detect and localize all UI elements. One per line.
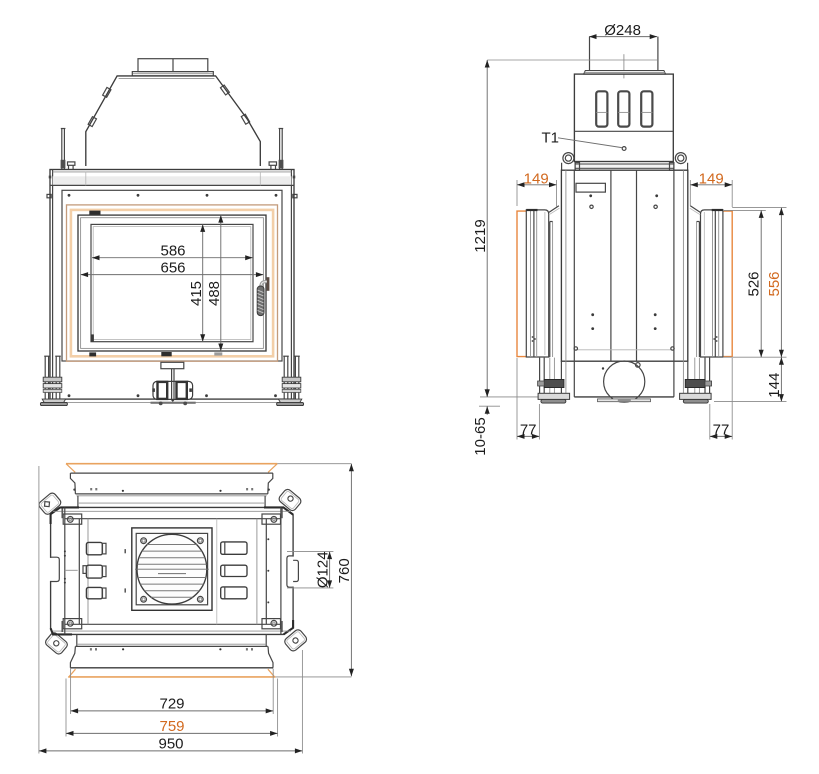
svg-text:760: 760 [336, 558, 353, 583]
svg-text:488: 488 [206, 281, 223, 306]
svg-text:149: 149 [699, 170, 724, 187]
svg-text:656: 656 [160, 259, 185, 276]
svg-text:1219: 1219 [472, 219, 489, 252]
svg-text:759: 759 [159, 718, 184, 735]
svg-text:10-65: 10-65 [472, 417, 489, 455]
svg-text:77: 77 [713, 421, 730, 438]
svg-text:Ø248: Ø248 [604, 22, 641, 39]
svg-text:149: 149 [524, 170, 549, 187]
svg-text:77: 77 [520, 421, 537, 438]
svg-text:415: 415 [188, 281, 205, 306]
svg-text:526: 526 [746, 271, 763, 296]
svg-text:T1: T1 [542, 129, 560, 146]
svg-text:729: 729 [159, 696, 184, 713]
svg-text:Ø124: Ø124 [314, 551, 331, 588]
svg-text:950: 950 [158, 736, 183, 753]
svg-text:556: 556 [766, 271, 783, 296]
svg-text:144: 144 [766, 373, 783, 398]
svg-text:586: 586 [160, 242, 185, 259]
